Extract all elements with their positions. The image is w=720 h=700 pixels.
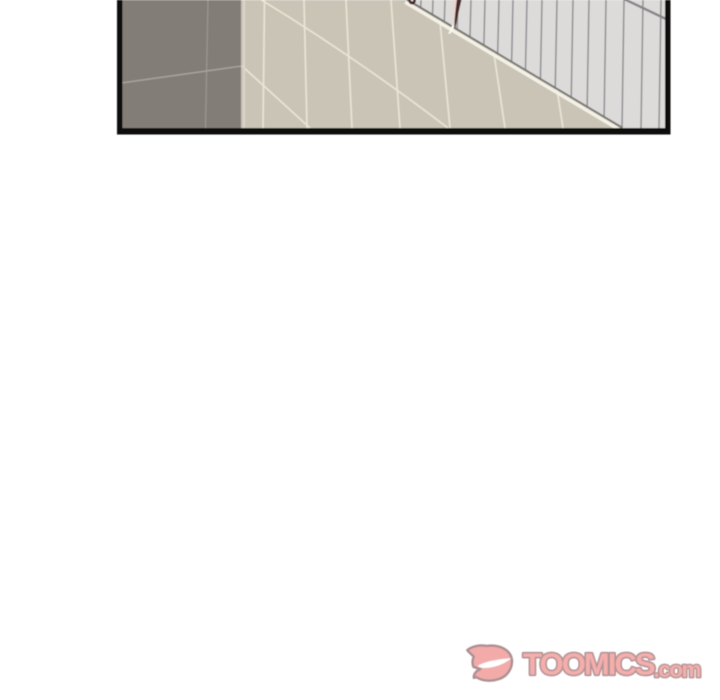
svg-text:TOOMICS: TOOMICS xyxy=(523,647,655,682)
svg-text:.com: .com xyxy=(654,657,701,682)
